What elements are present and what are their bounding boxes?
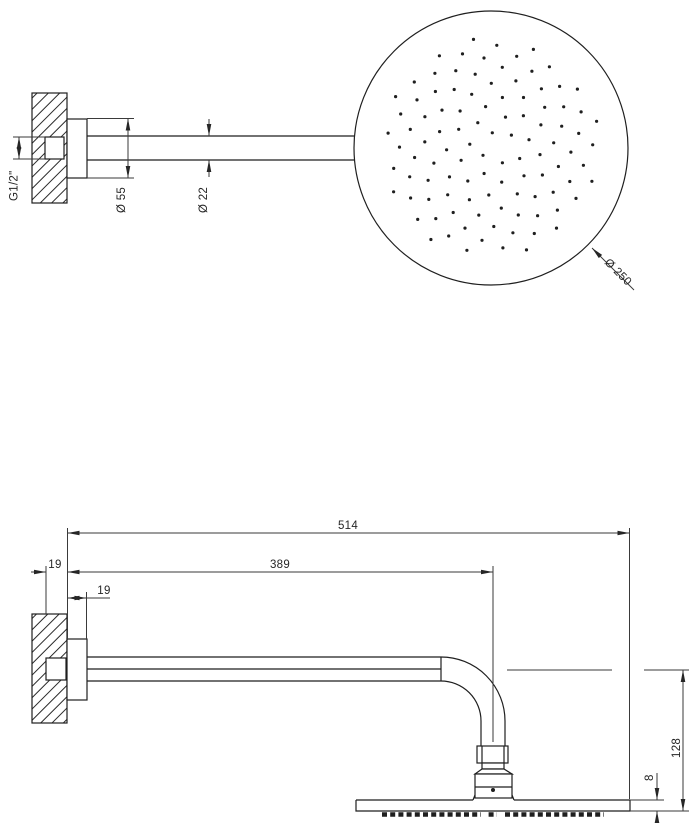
inlet-depth-label: 19	[48, 559, 61, 571]
thread-inlet-side	[46, 658, 66, 680]
head-diameter-label: Ø 250	[602, 257, 634, 289]
flange-depth-label: 19	[97, 585, 110, 597]
arm-diameter-label: Ø 22	[198, 187, 210, 213]
side-view	[32, 614, 630, 818]
elbow-inner-curve	[441, 681, 481, 746]
flange-diameter-label: Ø 55	[116, 187, 128, 213]
side-view-dimensions	[31, 528, 689, 822]
head-face-circle	[354, 11, 628, 285]
elbow-outer-curve	[441, 657, 505, 746]
technical-drawing-sheet: G1/2" Ø 55 Ø 22 Ø 250	[0, 0, 696, 837]
head-plate	[356, 800, 630, 818]
thread-label: G1/2"	[9, 170, 21, 201]
drawing-canvas: G1/2" Ø 55 Ø 22 Ø 250	[0, 0, 696, 837]
arm-projection-label: 389	[270, 559, 290, 571]
mounting-flange	[67, 119, 87, 178]
thread-inlet	[45, 137, 64, 159]
head-thickness-label: 8	[644, 774, 656, 781]
dim-head-drop	[507, 670, 689, 811]
head-drop-label: 128	[671, 738, 683, 758]
top-view	[32, 11, 628, 285]
mounting-flange-side	[67, 639, 87, 700]
swivel-connector	[473, 746, 514, 800]
total-projection-label: 514	[338, 520, 358, 532]
dim-flange-diameter	[87, 119, 134, 179]
